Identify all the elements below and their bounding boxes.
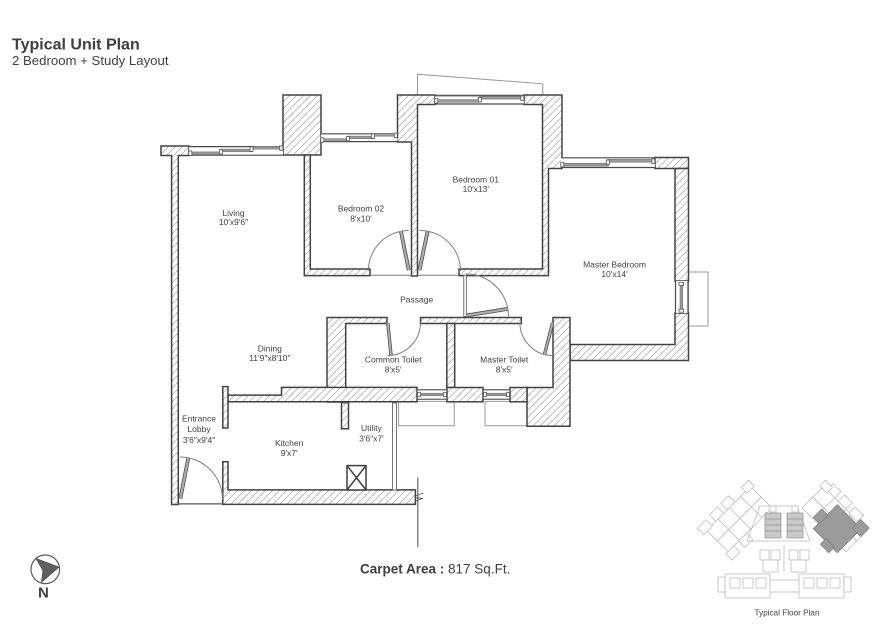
svg-text:Dining: Dining [258,343,282,353]
svg-text:Kitchen: Kitchen [275,438,304,448]
svg-text:10′x13′: 10′x13′ [463,184,490,194]
svg-text:10′x14′: 10′x14′ [601,269,628,279]
svg-text:Lobby: Lobby [187,424,211,434]
svg-text:Passage: Passage [400,294,433,304]
svg-text:N: N [38,585,49,602]
svg-text:Carpet Area : 817 Sq.Ft.: Carpet Area : 817 Sq.Ft. [360,562,510,577]
svg-text:2 Bedroom + Study Layout: 2 Bedroom + Study Layout [12,53,169,68]
svg-text:Master Toilet: Master Toilet [480,354,529,364]
svg-text:8′x5′: 8′x5′ [385,365,402,375]
svg-text:Common Toilet: Common Toilet [365,354,422,364]
svg-text:Bedroom 02: Bedroom 02 [338,204,385,214]
svg-text:Typical Unit Plan: Typical Unit Plan [12,36,140,53]
svg-text:Typical Floor Plan: Typical Floor Plan [754,609,820,618]
svg-text:10′x9′6″: 10′x9′6″ [219,217,248,227]
svg-text:3′6″x7′: 3′6″x7′ [359,433,384,443]
svg-text:8′x5′: 8′x5′ [496,365,513,375]
svg-text:Entrance: Entrance [182,414,216,424]
svg-text:11′9″x8′10″: 11′9″x8′10″ [249,353,290,363]
svg-text:3′6″x9′4″: 3′6″x9′4″ [183,435,215,445]
svg-text:Utility: Utility [361,423,383,433]
svg-text:9′x7′: 9′x7′ [281,448,298,458]
svg-text:8′x10′: 8′x10′ [350,213,372,223]
